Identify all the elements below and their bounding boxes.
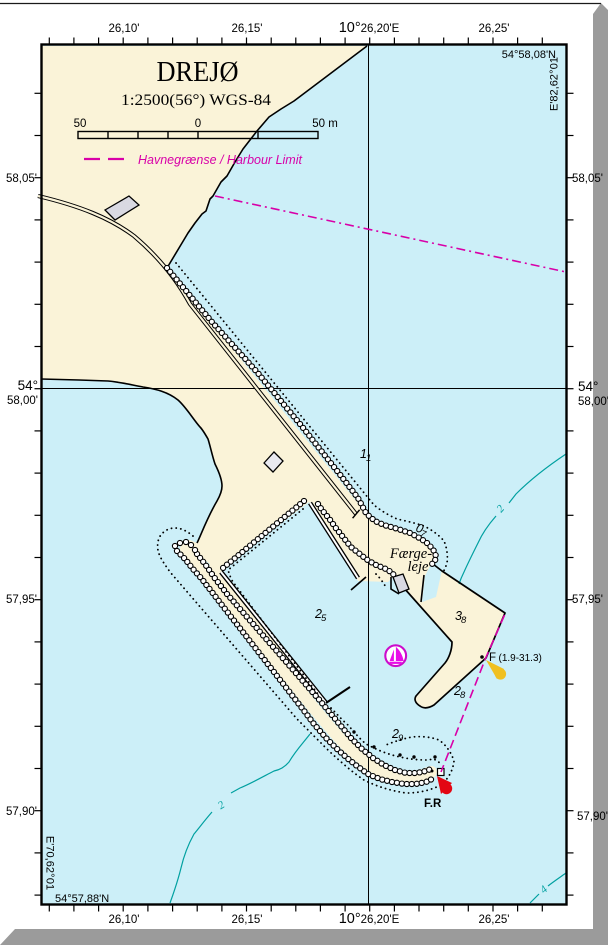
svg-text:6: 6 — [549, 80, 561, 86]
svg-text:1: 1 — [44, 884, 56, 890]
svg-text:(1.9-31.3): (1.9-31.3) — [499, 653, 542, 664]
svg-text:F.R: F.R — [424, 798, 442, 810]
svg-text:Havnegrænse / Harbour Limit: Havnegrænse / Harbour Limit — [138, 153, 302, 167]
svg-text:10°26,20'E: 10°26,20'E — [339, 911, 400, 927]
svg-text:7: 7 — [44, 845, 56, 851]
svg-text:26,15': 26,15' — [232, 914, 263, 926]
svg-text:57,95': 57,95' — [6, 594, 37, 606]
svg-text:58,05': 58,05' — [6, 173, 37, 185]
svg-text:5: 5 — [321, 613, 327, 624]
svg-text:8: 8 — [461, 615, 467, 626]
svg-text:26,10': 26,10' — [109, 23, 140, 35]
svg-text:58,05': 58,05' — [572, 173, 603, 185]
svg-text:2: 2 — [549, 89, 561, 95]
svg-text:0: 0 — [44, 878, 56, 884]
svg-text:,: , — [549, 86, 561, 89]
svg-text:26,15': 26,15' — [232, 23, 263, 35]
svg-text:58,00': 58,00' — [7, 395, 38, 407]
svg-text:58,00': 58,00' — [578, 396, 608, 408]
svg-text:6: 6 — [44, 861, 56, 867]
svg-text:26,10': 26,10' — [109, 914, 140, 926]
svg-text:54°57,88'N: 54°57,88'N — [55, 893, 109, 905]
svg-text:50: 50 — [74, 118, 87, 130]
svg-text:0: 0 — [195, 118, 201, 130]
svg-text:DREJØ: DREJØ — [157, 56, 239, 88]
svg-text:leje: leje — [408, 559, 429, 575]
svg-text:50 m: 50 m — [312, 118, 338, 130]
svg-text:E: E — [44, 836, 56, 843]
svg-text:8: 8 — [549, 95, 561, 101]
svg-text:°: ° — [44, 873, 56, 877]
svg-text:10°26,20'E: 10°26,20'E — [339, 20, 400, 36]
svg-text:,: , — [44, 858, 56, 861]
svg-text:°: ° — [549, 69, 561, 73]
svg-text:2: 2 — [44, 867, 56, 873]
svg-text:8: 8 — [460, 690, 466, 701]
svg-text:54°: 54° — [578, 379, 598, 394]
svg-text:26,25': 26,25' — [479, 914, 510, 926]
svg-text:57,95': 57,95' — [572, 594, 603, 606]
svg-text:0: 0 — [44, 851, 56, 857]
svg-text:1: 1 — [549, 57, 561, 63]
svg-text:1: 1 — [366, 453, 371, 464]
svg-text:': ' — [44, 843, 56, 845]
svg-text:9: 9 — [398, 733, 404, 744]
svg-text:': ' — [549, 102, 561, 104]
svg-text:0: 0 — [549, 63, 561, 69]
svg-text:26,25': 26,25' — [479, 23, 510, 35]
svg-text:1:2500(56°) WGS-84: 1:2500(56°) WGS-84 — [121, 92, 271, 109]
svg-text:2: 2 — [549, 74, 561, 80]
svg-text:F: F — [489, 652, 496, 664]
svg-text:54°: 54° — [18, 378, 38, 393]
svg-text:E: E — [549, 104, 561, 111]
svg-text:57,90': 57,90' — [6, 806, 37, 818]
svg-text:57,90': 57,90' — [577, 811, 608, 823]
